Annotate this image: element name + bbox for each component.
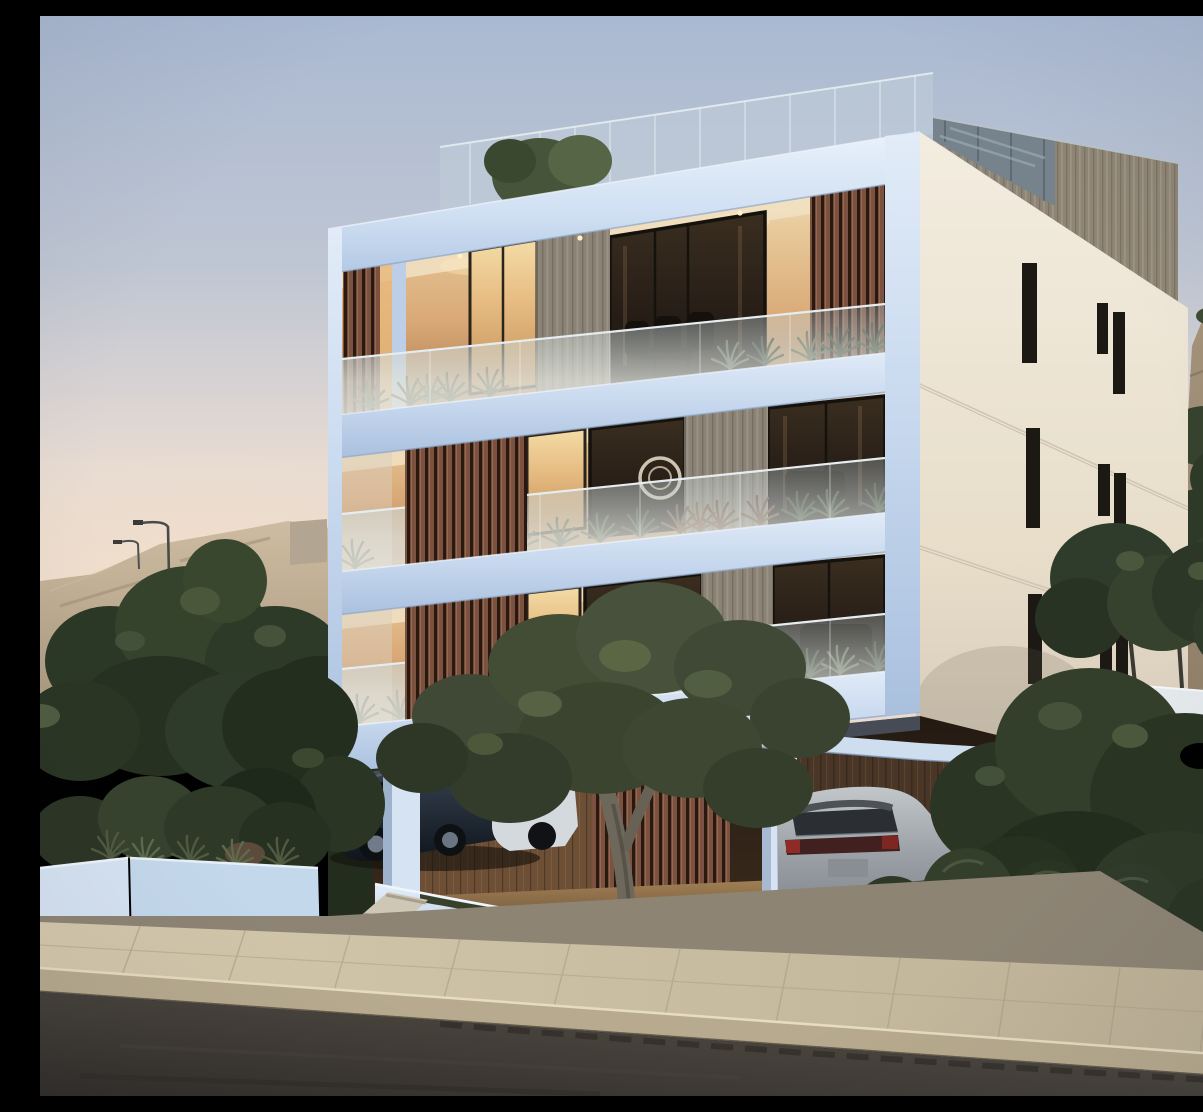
scene-canvas (40, 16, 1203, 1096)
architectural-render: Photorealistic dusk rendering of a moder… (40, 16, 1203, 1096)
vignette (40, 16, 1203, 1096)
